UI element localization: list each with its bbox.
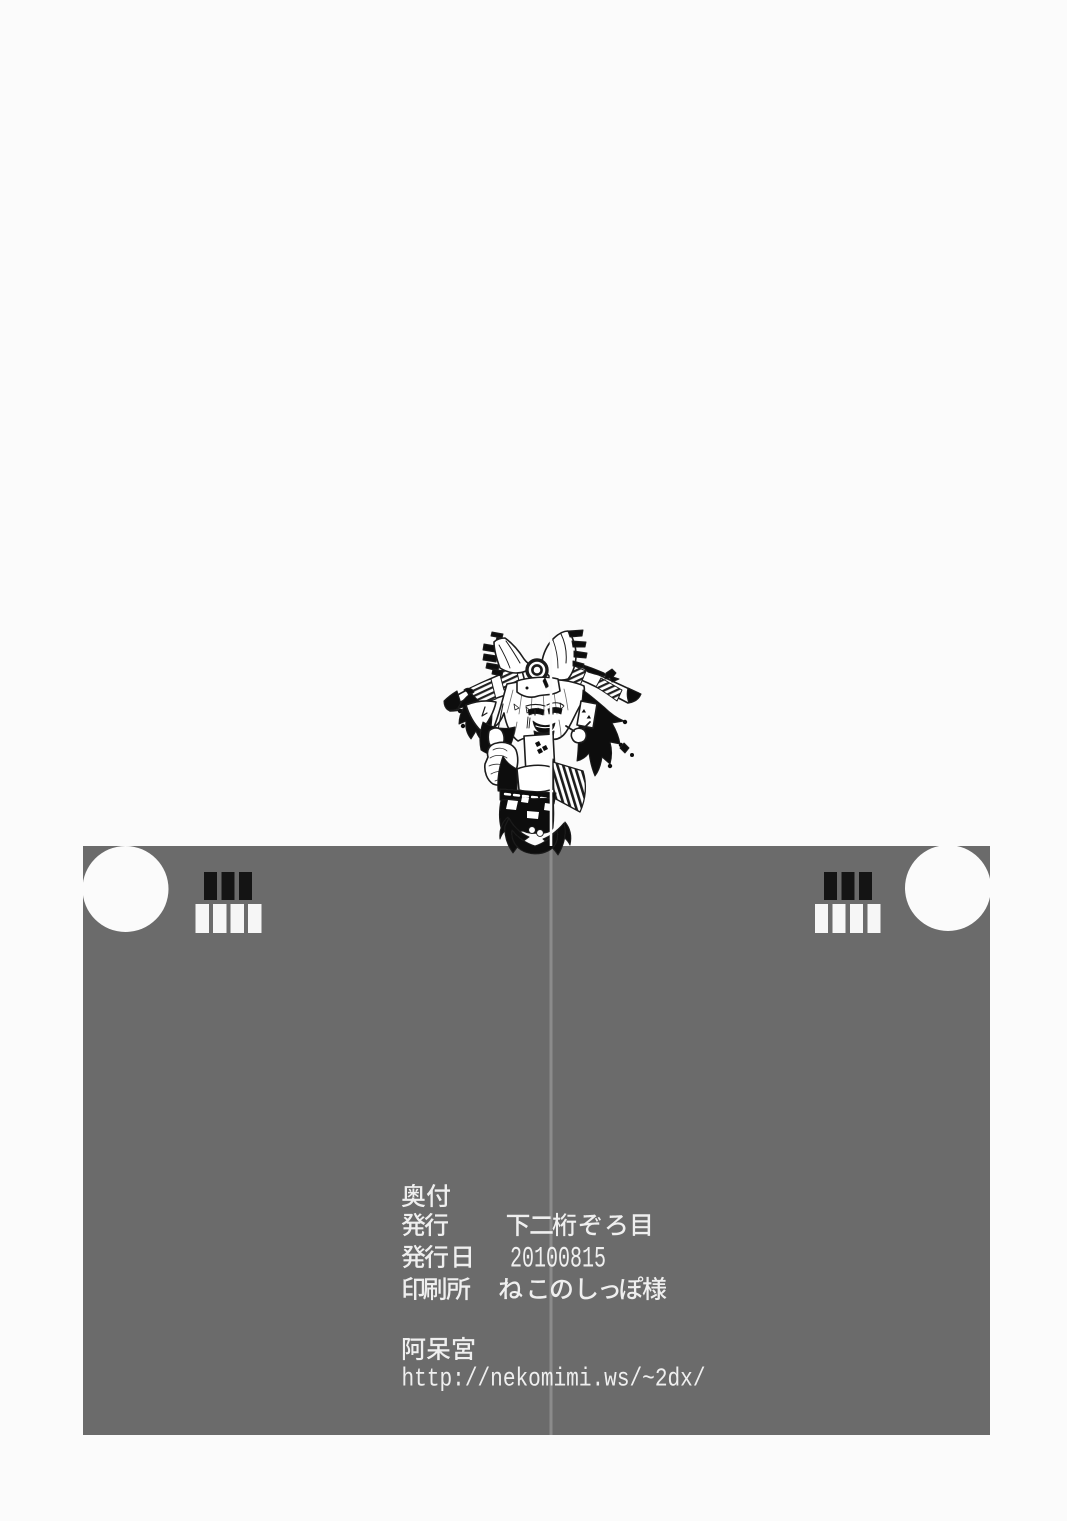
svg-text:http://nekomimi.ws/~2dx/: http://nekomimi.ws/~2dx/ [402, 1364, 706, 1394]
svg-text:20100815: 20100815 [510, 1243, 606, 1277]
